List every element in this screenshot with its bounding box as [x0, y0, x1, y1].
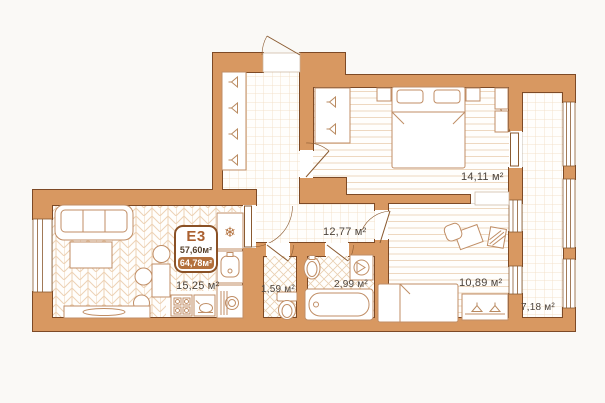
wall	[345, 75, 510, 87]
dishwasher-icon	[217, 285, 243, 318]
entry-door	[262, 36, 300, 72]
dining-chair	[135, 268, 152, 285]
wall	[300, 178, 346, 203]
window	[509, 200, 522, 232]
unit-badge: E3 57,60м² 64,78м²	[174, 225, 218, 273]
wall	[564, 166, 575, 179]
wall	[564, 248, 575, 259]
bookshelf-icon	[487, 227, 506, 248]
balcony-area-label: 7,18 м²	[521, 302, 555, 313]
toilet-icon	[277, 292, 297, 320]
window	[33, 219, 52, 292]
kitchen-stove-icon	[171, 295, 192, 316]
kitchen-living-area-label: 15,25 м²	[176, 280, 219, 292]
wall	[349, 243, 388, 256]
tv-stand	[64, 306, 150, 318]
bedroom-wardrobe	[315, 88, 350, 143]
wc-area-label: 1,59 м²	[261, 284, 295, 295]
cooking-pan-icon	[194, 295, 215, 316]
window	[509, 266, 522, 294]
wall	[243, 248, 256, 318]
wall	[346, 195, 470, 203]
balcony-floor	[522, 92, 563, 318]
unit-total-area: 64,78м²	[178, 257, 214, 269]
unit-code: E3	[176, 228, 216, 245]
double-bed	[392, 87, 465, 168]
sofa	[55, 205, 133, 240]
dining-table	[152, 264, 170, 297]
wall	[290, 243, 325, 256]
kitchen-sink-icon	[217, 251, 243, 283]
hallway-area-label: 12,77 м²	[323, 226, 366, 238]
dining-chair	[153, 246, 170, 263]
nightstand	[466, 88, 480, 101]
wall	[509, 87, 522, 131]
hall-wardrobe	[222, 72, 246, 170]
single-bed	[378, 284, 458, 322]
room-wardrobe	[462, 294, 508, 320]
pillow	[397, 90, 423, 103]
window	[563, 259, 575, 308]
washing-machine-icon	[350, 255, 373, 280]
wall	[563, 308, 575, 320]
wall	[509, 232, 522, 266]
snowflake-icon: ❄	[224, 225, 236, 241]
room-opening	[475, 192, 509, 205]
bedroom-area-label: 14,11 м²	[461, 171, 504, 183]
wall	[213, 53, 222, 192]
wall	[375, 196, 388, 210]
bathtub-icon	[305, 289, 373, 320]
wall	[300, 53, 345, 87]
floor-plan-drawing: ❄	[0, 0, 605, 403]
wall	[33, 190, 256, 205]
pillow	[434, 90, 460, 103]
window	[563, 102, 575, 166]
unit-living-area: 57,60м²	[176, 245, 216, 256]
bathroom-area-label: 2,99 м²	[334, 279, 368, 290]
floor-plan: ❄ 15,25 м² 12,77 м² 1,59 м² 2,99 м² 14,1…	[0, 0, 605, 403]
wall	[563, 92, 575, 102]
coffee-table	[70, 242, 112, 268]
room-area-label: 10,89 м²	[459, 277, 502, 289]
nightstand	[377, 88, 391, 101]
wall	[300, 87, 313, 150]
window	[563, 179, 575, 248]
